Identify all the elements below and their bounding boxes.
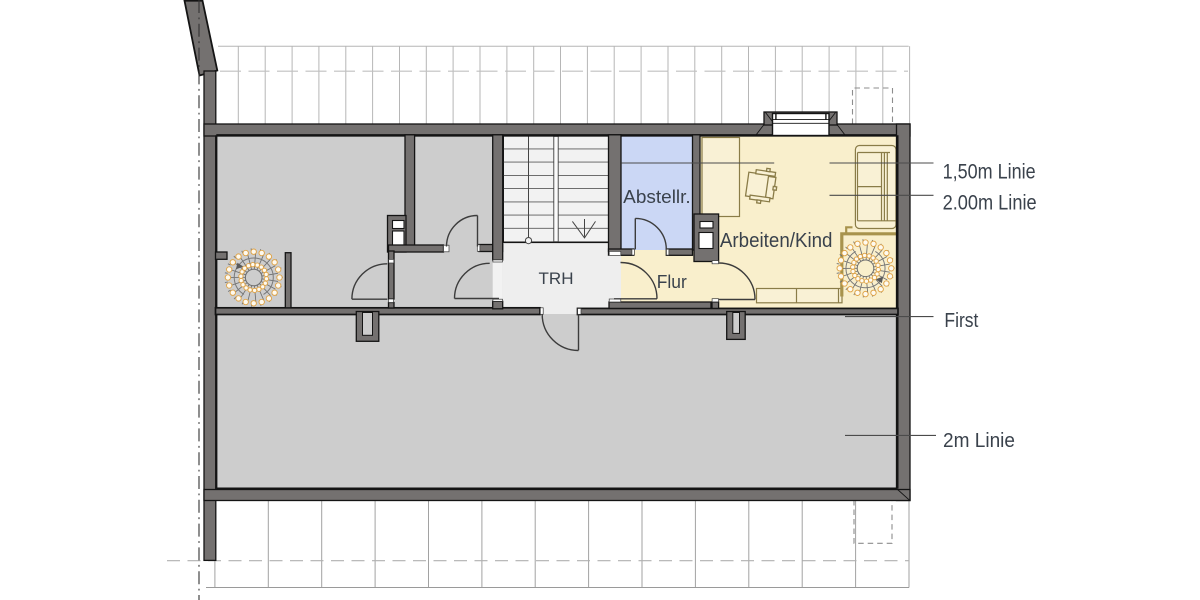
svg-text:2.00m Linie: 2.00m Linie <box>943 191 1037 215</box>
svg-text:TRH: TRH <box>539 270 574 288</box>
svg-text:Flur: Flur <box>657 272 687 292</box>
svg-text:First: First <box>944 310 978 332</box>
svg-text:2m Linie: 2m Linie <box>943 430 1015 452</box>
svg-text:Arbeiten/Kind: Arbeiten/Kind <box>720 230 833 252</box>
svg-text:1,50m Linie: 1,50m Linie <box>943 159 1036 183</box>
svg-text:Abstellr.: Abstellr. <box>623 187 691 207</box>
